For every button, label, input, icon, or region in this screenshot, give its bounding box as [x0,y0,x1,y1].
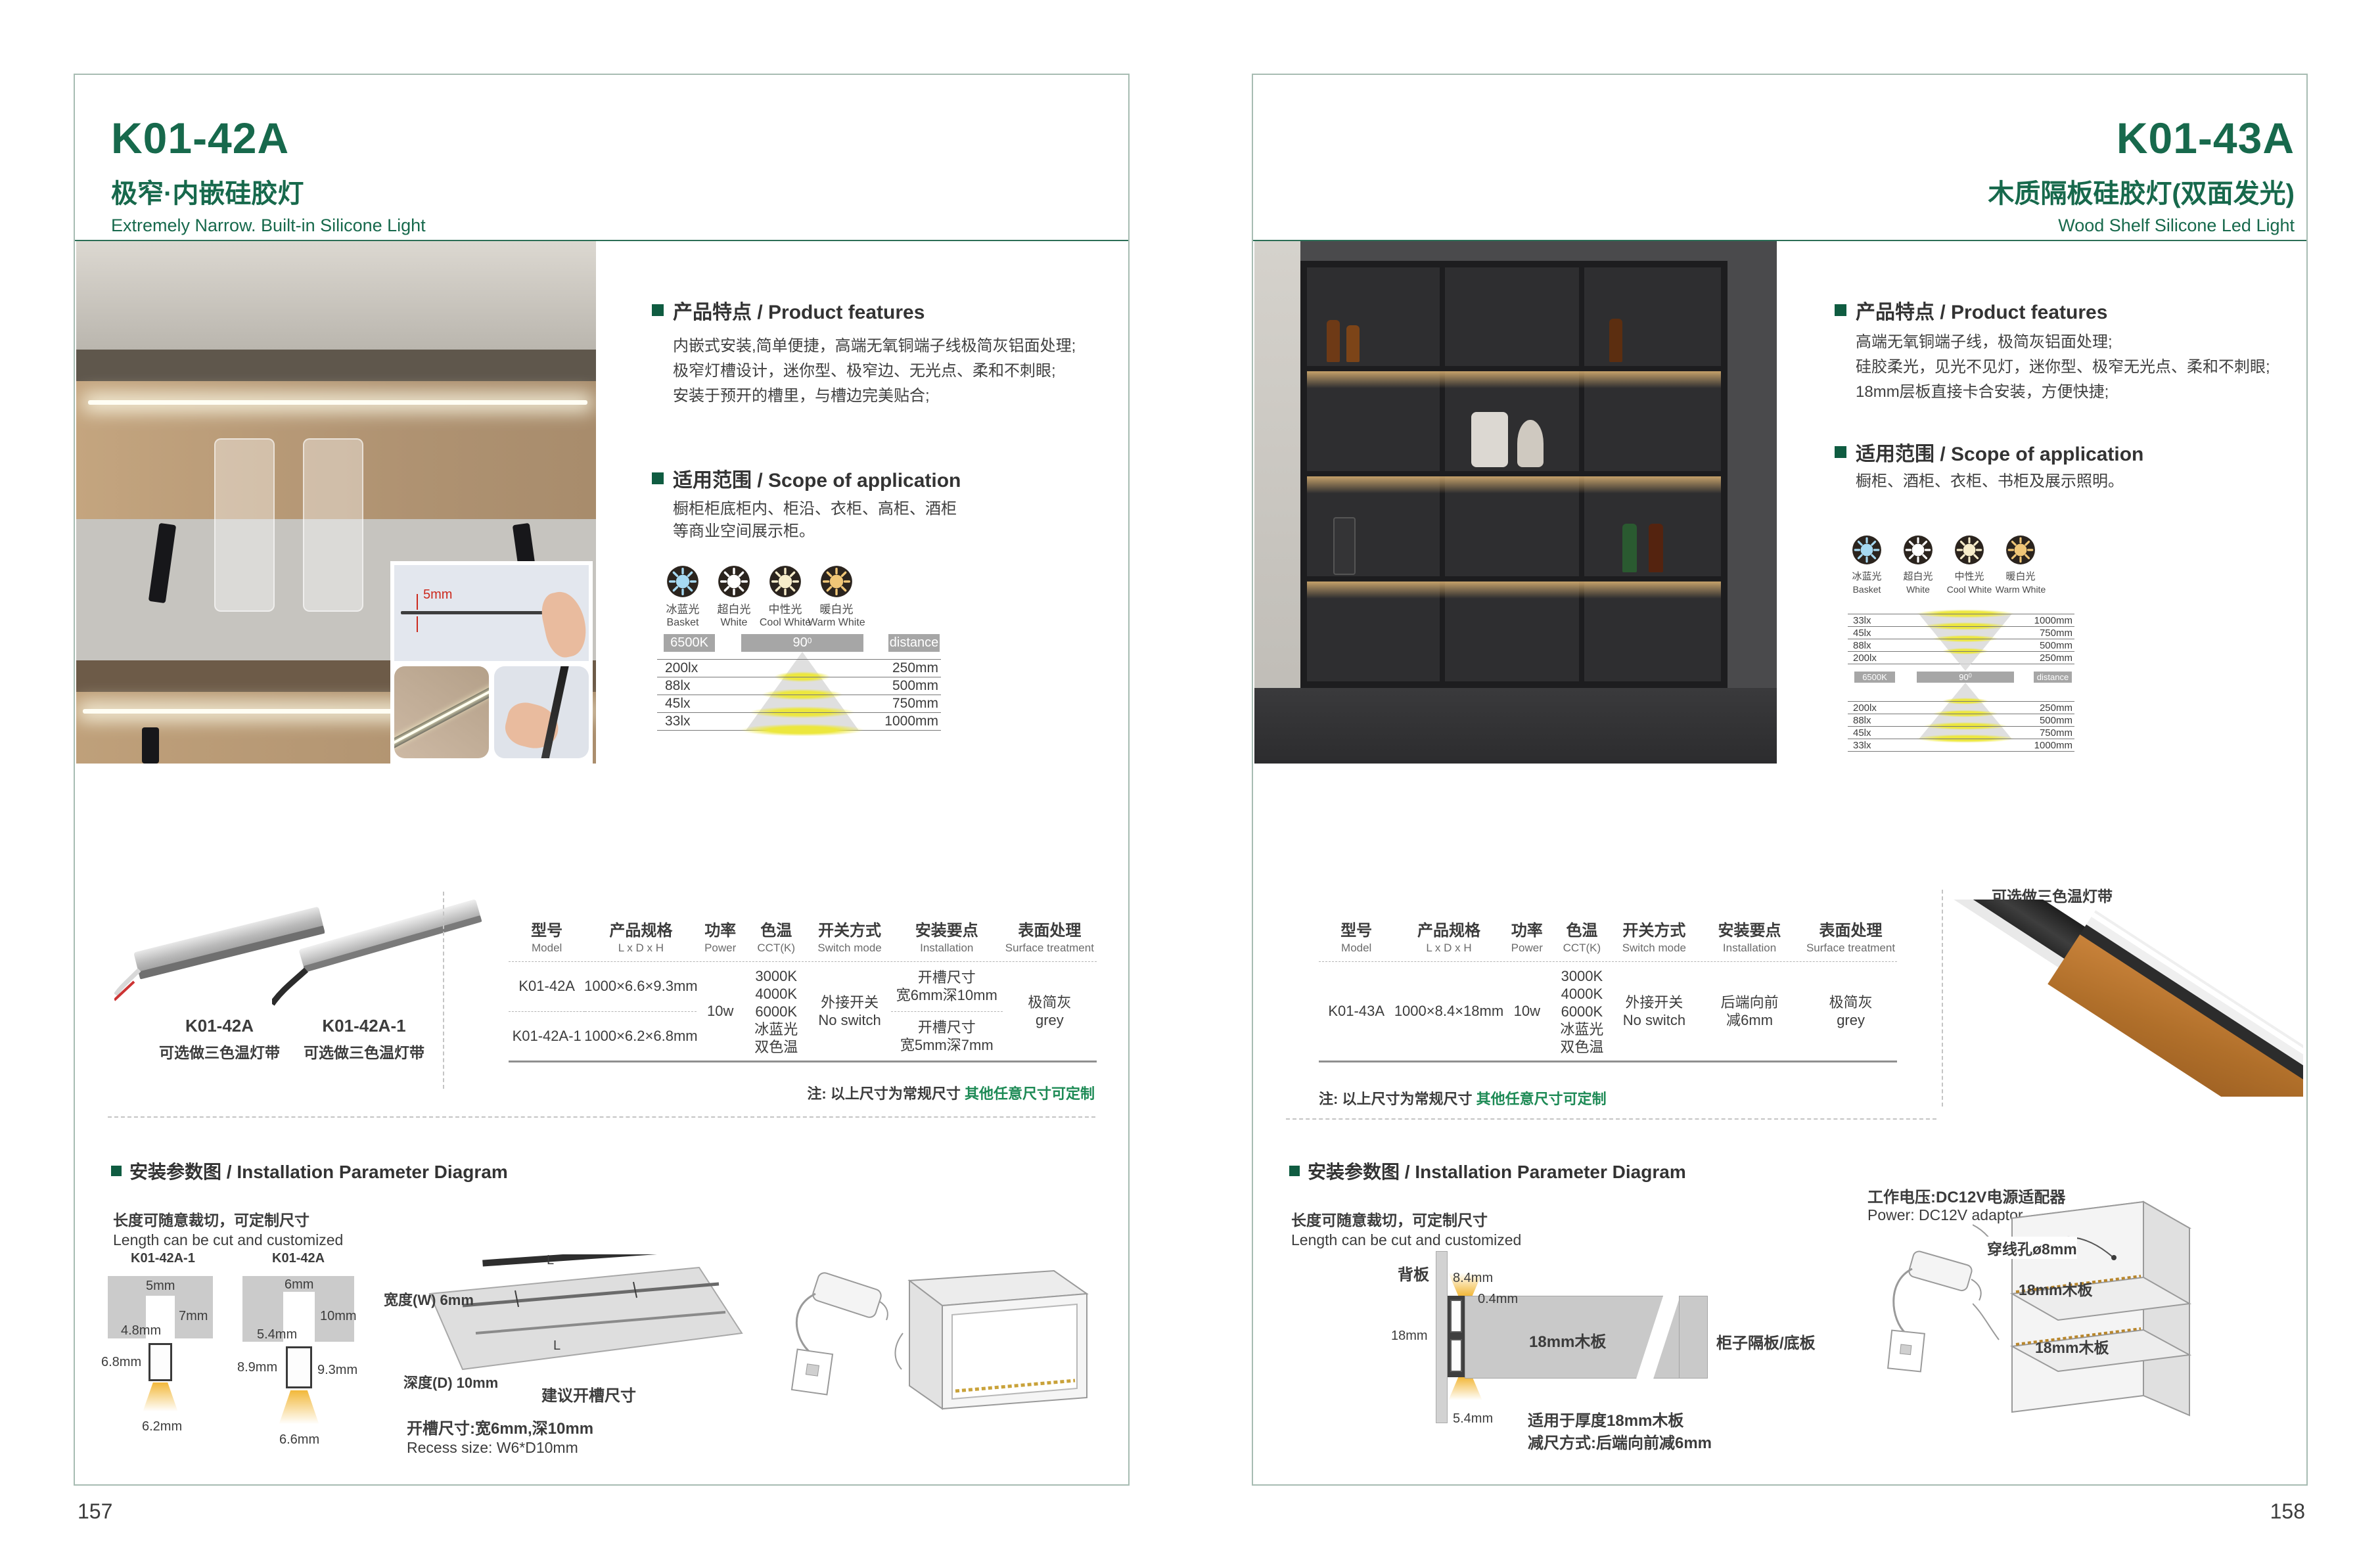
subtitle-zh: 木质隔板硅胶灯(双面发光) [1988,172,2295,210]
product-image-k01-43a: 可选做三色温灯带 [1950,880,2303,1097]
feature-line: 18mm层板直接卡合安装，方便快捷; [1856,380,2316,405]
lux-row: 88lx500mm [1848,639,2074,651]
section-divider [1286,1118,1936,1120]
vertical-divider [443,892,444,1089]
inset-wood-strip-photo [394,666,489,758]
features-heading-text: 产品特点 / Product features [1856,296,2107,325]
product-caption-model: K01-42A [154,1016,285,1036]
scope-section: 适用范围 / Scope of application 橱柜、酒柜、衣柜、书柜及… [1835,438,2143,467]
shelf-cabinet-sketch: 穿线孔ø8mm 18mm木板 18mm木板 [1973,1179,2249,1455]
lux-row: 200lx250mm [1848,701,2074,714]
shelf-board-label: 18mm木板 [2019,1277,2092,1300]
sun-icon [820,565,853,598]
page-right: K01-43A 木质隔板硅胶灯(双面发光) Wood Shelf Silicon… [1252,74,2308,1486]
dim-5-4: 5.4mm [1453,1411,1493,1426]
distance-value: 250mm [892,660,938,676]
spec-table: 型号Model 产品规格L x D x H 功率Power 色温CCT(K) 开… [509,917,1097,1062]
col-power: 10w [1504,962,1550,1061]
cct-option-cool-white: 中性光 Cool White [760,565,811,629]
subtitle-en: Wood Shelf Silicone Led Light [1988,216,2295,236]
product-caption-text: 可选做三色温灯带 [298,1040,430,1062]
page-title: K01-42A [111,113,426,163]
spec-table: 型号Model 产品规格L x D x H 功率Power 色温CCT(K) 开… [1319,917,1897,1062]
lux-value: 33lx [665,714,691,729]
cct-label-en: Cool White [760,616,811,629]
spec-table-body: K01-43A 1000×8.4×18mm 10w 3000K 4000K 60… [1319,962,1897,1062]
cct-label-zh: 暖白光 [820,603,854,616]
col-size: 1000×8.4×18mm [1394,962,1503,1061]
slab-suggest-label: 建议开槽尺寸 [541,1382,636,1405]
col-cct: 3000K 4000K 6000K 冰蓝光 双色温 [1550,962,1614,1061]
note-dark-text: 注: 以上尺寸为常规尺寸 [1319,1091,1476,1107]
col-size: 1000×6.6×9.3mm 1000×6.2×6.8mm [585,962,697,1061]
col-switch: 外接开关 No switch [808,962,890,1061]
spec-table-header: 型号Model 产品规格L x D x H 功率Power 色温CCT(K) 开… [1319,917,1897,962]
col-surface: 极简灰 grey [1804,962,1897,1061]
xsection-k01-42a-1: K01-42A-1 5mm 7mm 4.8mm 6.8mm 6.2mm [101,1251,233,1448]
note-green-text: 其他任意尺寸可定制 [965,1085,1095,1102]
col-switch: 外接开关 No switch [1614,962,1695,1061]
page-number-right: 158 [2253,1499,2305,1524]
beam-angle-chip: 900 [741,634,863,652]
install-sub-zh: 长度可随意裁切，可定制尺寸 [1291,1208,1488,1230]
section-bullet-icon [652,304,664,316]
distance-chip: distance [2034,672,2072,683]
cct-option-warm-white: 暖白光 Warm White [1995,535,2046,596]
page-title: K01-43A [1988,113,2295,163]
lux-row: 88lx500mm [657,677,941,695]
sun-icon [718,565,750,598]
beam-angle-value: 90 [793,635,808,650]
lux-distance-chart: 6500K 900 distance 200lx250mm 88lx500mm … [657,634,941,734]
catalog-spread: K01-42A 极窄·内嵌硅胶灯 Extremely Narrow. Built… [0,0,2380,1552]
feature-line: 硅胶柔光，见光不见灯，迷你型、极窄无光点、柔和不刺眼; [1856,355,2316,380]
install-sub-en: Length can be cut and customized [113,1231,343,1249]
scope-heading: 适用范围 / Scope of application [652,464,961,493]
section-bullet-icon [1835,304,1846,316]
dim-18: 18mm [1391,1329,1428,1344]
install-section-heading: 安装参数图 / Installation Parameter Diagram [111,1158,508,1184]
cct-label-zh: 超白光 [718,603,751,616]
distance-value: 500mm [892,678,938,694]
fit-note-1: 适用于厚度18mm木板 [1528,1407,1683,1430]
install-heading-text: 安装参数图 / Installation Parameter Diagram [1308,1158,1686,1184]
lux-row: 45lx750mm [1848,626,2074,639]
slab-depth-label: 深度(D) 10mm [403,1371,498,1392]
section-divider [108,1116,1095,1118]
lux-row: 45lx750mm [1848,726,2074,739]
slab-width-label: 宽度(W) 6mm [384,1289,474,1310]
subtitle-zh: 极窄·内嵌硅胶灯 [111,172,426,210]
section-bullet-icon [1289,1166,1300,1176]
col-power: 10w [697,962,744,1061]
cabinet-sketch [890,1254,1100,1425]
cct-options: 冰蓝光 Basket 超白光 White 中性光 Cool White [1841,535,2046,596]
col-cct: 3000K 4000K 6000K 冰蓝光 双色温 [744,962,808,1061]
page-number-left: 157 [78,1499,112,1524]
distance-chip: distance [888,634,940,652]
cct-options: 冰蓝光 Basket 超白光 White 中性光 Cool White [657,565,862,629]
col-install: 后端向前 减6mm [1695,962,1804,1061]
lux-value: 200lx [665,660,698,676]
adapter-plug-sketch [775,1267,893,1399]
lux-value: 45lx [665,696,691,712]
beam-angle-chip: 900 [1917,672,2014,683]
scope-heading-text: 适用范围 / Scope of application [673,464,961,493]
product-image-k01-42a-1 [272,878,482,1016]
col-model: K01-43A [1319,962,1394,1061]
page-header-right: K01-43A 木质隔板硅胶灯(双面发光) Wood Shelf Silicon… [1988,113,2295,236]
shelf-xsection-diagram: 背板 8.4mm 0.4mm 18mm 5.4mm 18mm木板 柜子隔板/底板… [1385,1251,1831,1442]
features-heading: 产品特点 / Product features [652,296,925,325]
note-green-text: 其他任意尺寸可定制 [1476,1091,1607,1107]
dim-0-4: 0.4mm [1478,1292,1518,1307]
recess-size-en: Recess size: W6*D10mm [407,1439,578,1457]
section-bullet-icon [1835,446,1846,458]
cct-option-ice-blue: 冰蓝光 Basket [657,565,708,629]
lux-row: 33lx1000mm [657,712,941,730]
scope-line: 等商业空间展示柜。 [673,520,1133,543]
sun-icon [769,565,802,598]
board-label: 18mm木板 [1529,1329,1606,1352]
product-caption-1: K01-42A 可选做三色温灯带 [154,1016,285,1062]
section-bullet-icon [652,472,664,484]
spec-table-body: K01-42A K01-42A-1 1000×6.6×9.3mm 1000×6.… [509,962,1097,1062]
product-caption-2: K01-42A-1 可选做三色温灯带 [298,1016,430,1062]
feature-line: 内嵌式安装,简单便捷，高端无氧铜端子线极简灰铝面处理; [673,334,1133,359]
install-sub-zh: 长度可随意裁切，可定制尺寸 [113,1208,309,1230]
col-model: K01-42A K01-42A-1 [509,962,585,1061]
sun-icon [1954,535,1984,565]
wire-hole-label: 穿线孔ø8mm [1987,1237,2077,1259]
product-photo-display-cabinet [1254,241,1777,764]
table-note: 注: 以上尺寸为常规尺寸 其他任意尺寸可定制 [666,1082,1095,1103]
cct-label-zh: 中性光 [769,603,802,616]
cct-label-zh: 冰蓝光 [666,603,700,616]
features-heading: 产品特点 / Product features [1835,296,2107,325]
sun-icon [666,565,699,598]
section-bullet-icon [111,1166,122,1176]
inset-thinness-photo: 5mm [394,565,589,661]
col-surface: 极简灰 grey [1003,962,1097,1061]
vertical-divider [1942,890,1943,1107]
length-mark: L [547,1253,554,1268]
cct-option-ice-blue: 冰蓝光 Basket [1841,535,1892,596]
lux-row: 88lx500mm [1848,714,2074,726]
scope-section: 适用范围 / Scope of application 橱柜柜底柜内、柜沿、衣柜… [652,464,961,493]
install-section-heading: 安装参数图 / Installation Parameter Diagram [1289,1158,1686,1184]
col-install: 开槽尺寸 宽6mm深10mm 开槽尺寸 宽5mm深7mm [891,962,1003,1061]
recess-slab-diagram: L L 宽度(W) 6mm 深度(D) 10mm 建议开槽尺寸 [384,1254,752,1405]
page-header-left: K01-42A 极窄·内嵌硅胶灯 Extremely Narrow. Built… [111,113,426,236]
subtitle-en: Extremely Narrow. Built-in Silicone Ligh… [111,216,426,236]
features-section: 产品特点 / Product features 内嵌式安装,简单便捷，高端无氧铜… [652,296,925,325]
inset-hand-strip-photo [494,666,589,758]
install-sub-en: Length can be cut and customized [1291,1231,1521,1249]
lux-row: 45lx750mm [657,695,941,712]
features-heading-text: 产品特点 / Product features [673,296,925,325]
lux-row: 200lx250mm [1848,651,2074,664]
inset-dimension-label: 5mm [423,587,452,603]
sun-icon [2005,535,2036,565]
table-note: 注: 以上尺寸为常规尺寸 其他任意尺寸可定制 [1319,1087,1607,1108]
install-heading-text: 安装参数图 / Installation Parameter Diagram [129,1158,508,1184]
cct-option-cool-white: 中性光 Cool White [1944,535,1995,596]
lux-row: 200lx250mm [657,659,941,677]
back-panel-label: 背板 [1398,1262,1429,1285]
cct-label-en: White [721,616,748,629]
cct-label-en: Basket [667,616,699,629]
product-caption-model: K01-42A-1 [298,1016,430,1036]
shelf-board-label: 18mm木板 [2035,1335,2109,1358]
scope-line: 橱柜、酒柜、衣柜、书柜及展示照明。 [1856,470,2316,493]
kelvin-chip: 6500K [664,634,715,652]
cct-option-white: 超白光 White [708,565,760,629]
feature-line: 高端无氧铜端子线，极简灰铝面处理; [1856,330,2316,355]
scope-heading: 适用范围 / Scope of application [1835,438,2143,467]
features-section: 产品特点 / Product features 高端无氧铜端子线，极简灰铝面处理… [1835,296,2107,325]
sun-icon [1903,535,1933,565]
lux-value: 88lx [665,678,691,694]
spec-table-header: 型号Model 产品规格L x D x H 功率Power 色温CCT(K) 开… [509,917,1097,962]
lux-row: 33lx1000mm [1848,739,2074,751]
note-dark-text: 注: 以上尺寸为常规尺寸 [807,1085,965,1102]
photo-inset-detail: 5mm [390,561,593,764]
feature-line: 安装于预开的槽里，与槽边完美贴合; [673,384,1133,409]
side-label: 柜子隔板/底板 [1716,1330,1816,1353]
cct-option-warm-white: 暖白光 Warm White [811,565,862,629]
product-caption-text: 可选做三色温灯带 [154,1040,285,1062]
lux-distance-chart-double: 33lx1000mm 45lx750mm 88lx500mm 200lx250m… [1848,612,2074,744]
page-left: K01-42A 极窄·内嵌硅胶灯 Extremely Narrow. Built… [74,74,1130,1486]
adapter-plug-sketch [1874,1241,1986,1386]
scope-heading-text: 适用范围 / Scope of application [1856,438,2143,467]
dim-8-4: 8.4mm [1453,1271,1493,1286]
distance-value: 1000mm [884,714,938,729]
recess-size-zh: 开槽尺寸:宽6mm,深10mm [407,1415,593,1438]
cct-option-white: 超白光 White [1892,535,1944,596]
length-mark: L [553,1338,561,1354]
cct-label-en: Warm White [808,616,865,629]
xsection-model-label: K01-42A-1 [131,1251,195,1266]
feature-line: 极窄灯槽设计，迷你型、极窄边、无光点、柔和不刺眼; [673,359,1133,384]
beam-angle-sup: 0 [808,636,812,645]
xsection-model-label: K01-42A [272,1251,325,1266]
kelvin-chip: 6500K [1854,672,1895,683]
hand-photo [538,588,591,661]
xsection-k01-42a: K01-42A 6mm 10mm 5.4mm 8.9mm 9.3mm 6.6mm [236,1251,374,1455]
lux-row: 33lx1000mm [1848,614,2074,626]
sun-icon [1852,535,1882,565]
distance-value: 750mm [892,696,938,712]
fit-note-2: 减尺方式:后端向前减6mm [1528,1430,1712,1453]
scope-line: 橱柜柜底柜内、柜沿、衣柜、高柜、酒柜 [673,498,1133,520]
